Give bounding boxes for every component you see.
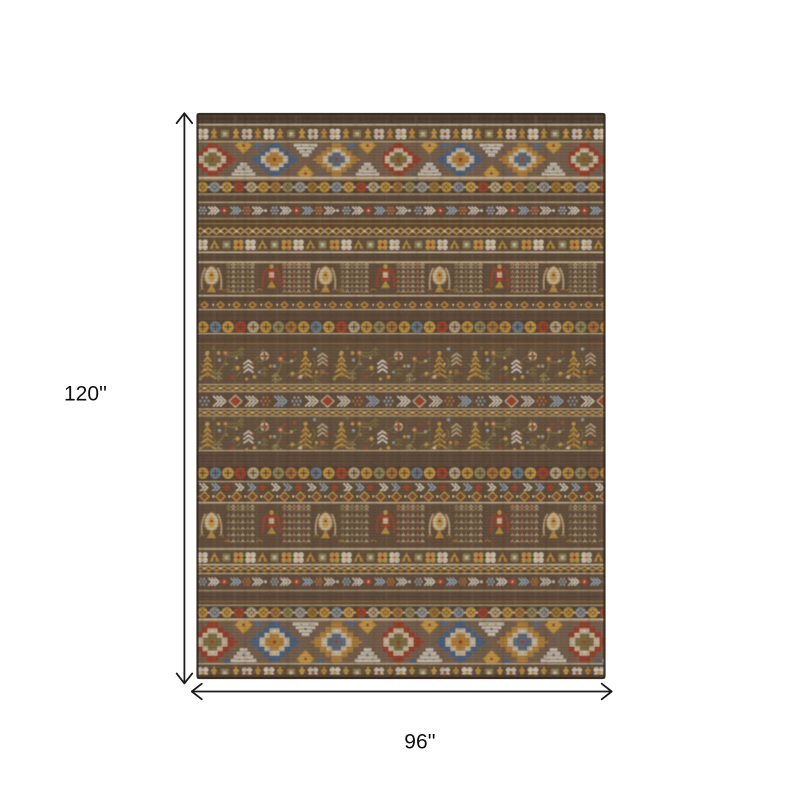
svg-text:96'': 96'': [404, 731, 435, 754]
svg-text:120'': 120'': [64, 383, 107, 406]
